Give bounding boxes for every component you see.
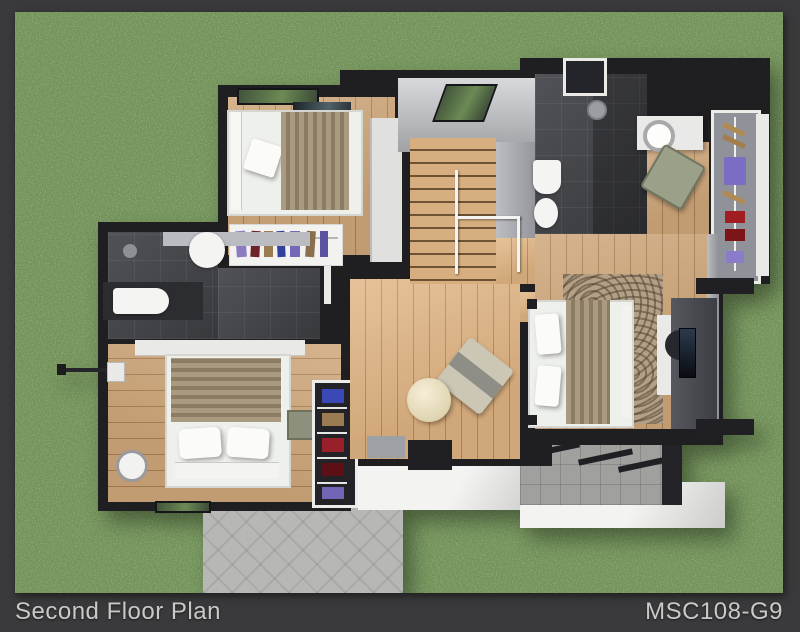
bed-2 xyxy=(165,354,291,488)
plan-title: Second Floor Plan xyxy=(15,598,221,626)
folded-clothes xyxy=(322,487,344,499)
closet-outer-edge xyxy=(756,114,769,276)
hall-step xyxy=(367,436,405,458)
armchair-cushion xyxy=(449,352,503,399)
shower-head-2 xyxy=(123,244,137,258)
wardrobe-shelf xyxy=(317,432,347,434)
master-bed xyxy=(528,300,634,428)
bed-post xyxy=(527,299,537,309)
exterior-lamp-head xyxy=(57,364,66,375)
floor-plan xyxy=(15,12,783,593)
yard-scene xyxy=(15,12,783,593)
wardrobe-shelf xyxy=(317,457,347,459)
master-footboard xyxy=(622,306,630,418)
bedroom-2-window xyxy=(155,501,211,513)
bathroom-2-door xyxy=(324,266,331,304)
stair-handrail xyxy=(517,216,520,272)
wardrobe-shelf xyxy=(317,482,347,484)
bed-2-footboard xyxy=(175,462,279,479)
patio-tiles xyxy=(203,502,403,593)
round-side-table xyxy=(407,378,451,422)
hanging-clothes xyxy=(726,251,744,263)
stair-handrail xyxy=(455,170,458,274)
tv-screen xyxy=(679,328,696,378)
stool xyxy=(116,450,148,482)
bed-1-headboard xyxy=(231,112,242,210)
hanging-clothes xyxy=(725,211,745,223)
toilet-1 xyxy=(533,160,561,194)
caption-bar: Second Floor Plan MSC108-G9 xyxy=(15,593,783,630)
basin-1 xyxy=(534,198,558,228)
folded-clothes xyxy=(322,413,344,426)
wardrobe-shelf xyxy=(317,407,347,409)
master-pillow xyxy=(534,365,561,407)
bed-1-blanket xyxy=(281,112,349,210)
basin-2 xyxy=(189,232,225,268)
framed-floor-plan-image: { "caption": { "title": "Second Floor Pl… xyxy=(0,0,800,632)
terrace-joist xyxy=(578,448,633,465)
bed-1 xyxy=(227,110,363,216)
toilet-2 xyxy=(113,288,169,314)
bathroom-2-floor-east xyxy=(218,268,320,339)
bed-2-pillow xyxy=(178,427,222,460)
staircase xyxy=(410,138,496,284)
shower-skylight xyxy=(563,58,607,96)
folded-clothes xyxy=(322,463,344,476)
lower-roof-left xyxy=(358,464,538,510)
rain-shower-head xyxy=(587,100,607,120)
hanging-clothes xyxy=(724,157,746,185)
bed-post xyxy=(527,415,537,425)
lamp-bracket xyxy=(107,362,125,382)
bed-1-pillow xyxy=(243,138,283,178)
folded-clothes xyxy=(322,389,344,403)
exterior-lamp-pole xyxy=(60,368,110,372)
hanging-clothes xyxy=(320,231,328,257)
bed-2-blanket xyxy=(171,358,281,422)
plan-code: MSC108-G9 xyxy=(645,598,783,626)
hanging-clothes xyxy=(725,229,745,241)
master-blanket-drape xyxy=(566,300,610,424)
shower-zone xyxy=(593,74,647,234)
terrace-parapet xyxy=(662,445,682,505)
bed-2-pillow xyxy=(226,427,270,460)
window-stub-top xyxy=(696,278,754,294)
hall-door-stub xyxy=(408,440,452,470)
folded-clothes xyxy=(322,438,344,452)
bathroom-2-counter xyxy=(163,232,310,246)
master-pillow xyxy=(534,313,561,355)
stair-handrail xyxy=(458,216,520,219)
window-stub-bottom xyxy=(696,419,754,435)
terrace-joist xyxy=(618,457,664,472)
